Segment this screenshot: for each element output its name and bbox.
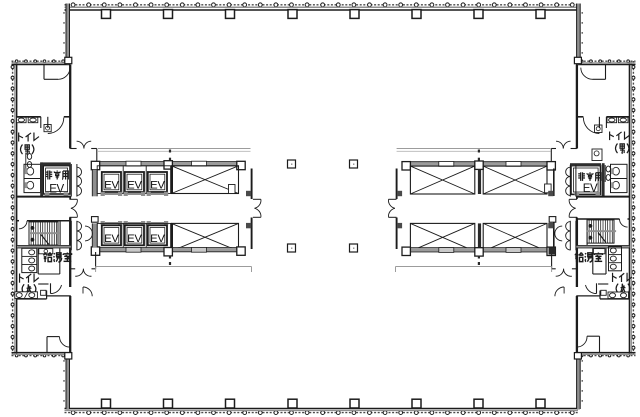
svg-text:EV: EV [127,233,142,245]
svg-text:EV: EV [150,233,165,245]
svg-text:EV: EV [104,180,119,192]
svg-text:EV: EV [127,180,142,192]
svg-text:EV: EV [49,184,64,196]
svg-text:EV: EV [104,233,119,245]
svg-text:EV: EV [150,180,165,192]
